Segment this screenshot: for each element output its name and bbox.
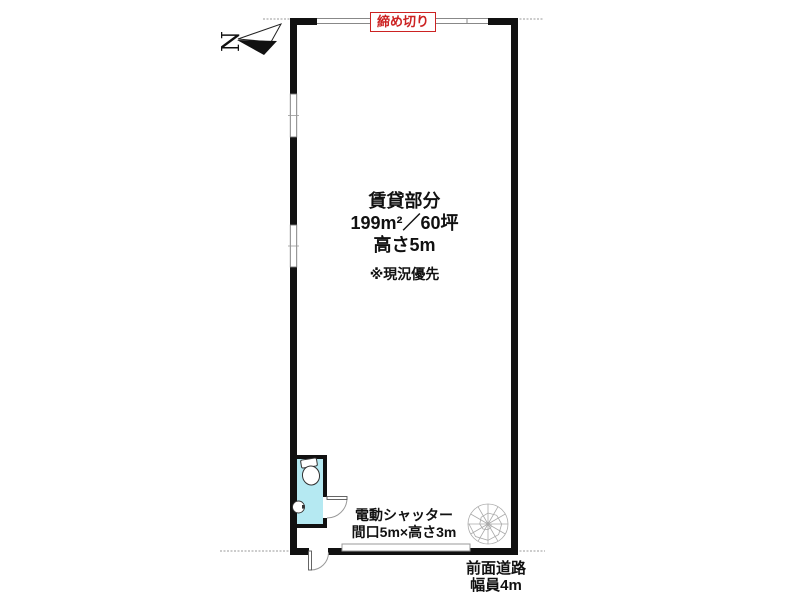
north-arrow-icon: N [217, 24, 281, 55]
north-label: N [217, 31, 245, 52]
road-label-line1: 前面道路 [436, 560, 556, 577]
shutter-label-line2: 間口5m×高さ3m [314, 524, 494, 541]
unit-info-label: 賃貸部分 199m²／60坪 高さ5m ※現況優先 [291, 190, 518, 283]
unit-height: 高さ5m [291, 234, 518, 256]
floorplan-canvas: N 締め切り 賃貸部分 199m²／60坪 高さ5m ※現況優先 電動シャッター… [0, 0, 800, 600]
road-label-line2: 幅員4m [436, 577, 556, 594]
unit-title: 賃貸部分 [291, 190, 518, 212]
unit-note: ※現況優先 [291, 265, 518, 283]
closed-opening-label: 締め切り [370, 12, 436, 32]
left-wall-window-1 [288, 94, 299, 137]
shutter-label: 電動シャッター 間口5m×高さ3m [314, 507, 494, 541]
shutter-label-line1: 電動シャッター [314, 507, 494, 524]
electric-shutter [342, 544, 470, 551]
hand-basin-icon [293, 501, 305, 513]
road-label: 前面道路 幅員4m [436, 560, 556, 594]
entry-door [309, 547, 329, 570]
unit-area: 199m²／60坪 [291, 212, 518, 234]
